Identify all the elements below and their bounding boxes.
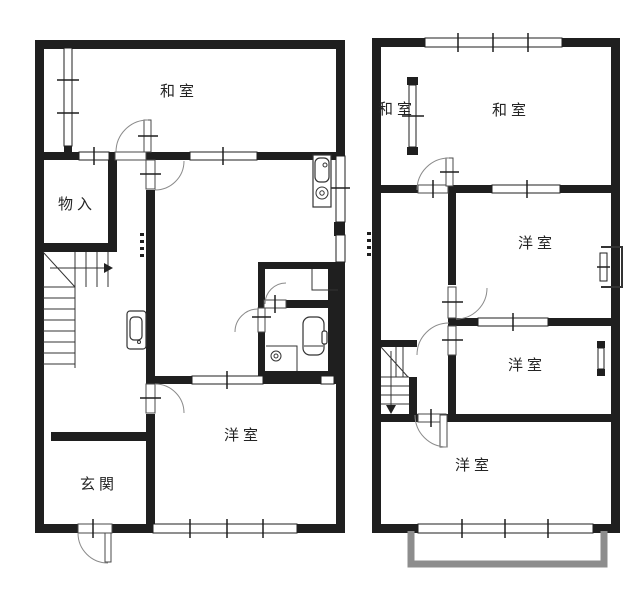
floor2-balcony [411, 531, 604, 564]
floor2-window-bottom [418, 519, 593, 538]
floor1-toilet-bowl [303, 317, 327, 355]
floor1-plan: 和室 物入 玄関 洋室 [35, 40, 350, 563]
floor2-window-top [425, 33, 562, 52]
floor2-door-western-bottom [415, 409, 447, 447]
floor2-label-washitsu-left: 和室 [378, 100, 416, 118]
floor2-plan: 和室 和室 洋室 洋室 洋室 [367, 33, 622, 564]
floor2-label-western-lower: 洋室 [508, 356, 546, 374]
floor1-staircase [43, 252, 113, 368]
floor2-label-western-middle: 洋室 [518, 234, 556, 252]
floor1-door-washroom [264, 283, 286, 313]
floorplan-canvas: 和室 物入 玄関 洋室 [0, 0, 640, 599]
floor1-walls [35, 40, 345, 533]
floor2-label-washitsu-right: 和室 [492, 101, 530, 119]
floor1-opening-dashes [140, 233, 144, 257]
floor1-door-hall-dk [140, 160, 184, 190]
floor1-window-washitsu-left [57, 48, 79, 154]
floor2-label-western-bottom: 洋室 [455, 456, 493, 474]
floor1-wash-basin [266, 346, 297, 371]
floor1-door-toilet [235, 308, 271, 332]
floor1-kitchen-unit [313, 155, 331, 207]
floor1-window-bottom [153, 519, 297, 538]
floor1-label-washitsu: 和室 [160, 82, 198, 100]
floor1-label-storage: 物入 [58, 195, 96, 213]
floor2-opening-dashes [367, 232, 371, 256]
floor1-hall-fixture [127, 311, 146, 349]
floorplan-image: 和室 物入 玄関 洋室 [0, 0, 640, 599]
floor1-label-western: 洋室 [224, 426, 262, 444]
floor1-front-door [78, 519, 112, 563]
floor1-door-dk-yoshitsu [140, 384, 184, 413]
floor2-door-western-lower [417, 323, 463, 355]
floor2-door-western-middle [442, 287, 487, 319]
floor1-label-entrance: 玄関 [80, 475, 118, 493]
floor1-window-kitchen-right [331, 156, 350, 262]
floor2-window-right-inset [597, 341, 605, 376]
floor2-window-lower-wall [478, 313, 548, 331]
floor2-stair-arrow [386, 351, 396, 414]
floor2-window-mid-wall [492, 180, 560, 198]
floor1-stair-arrow [50, 263, 113, 273]
floor2-staircase [381, 347, 409, 414]
